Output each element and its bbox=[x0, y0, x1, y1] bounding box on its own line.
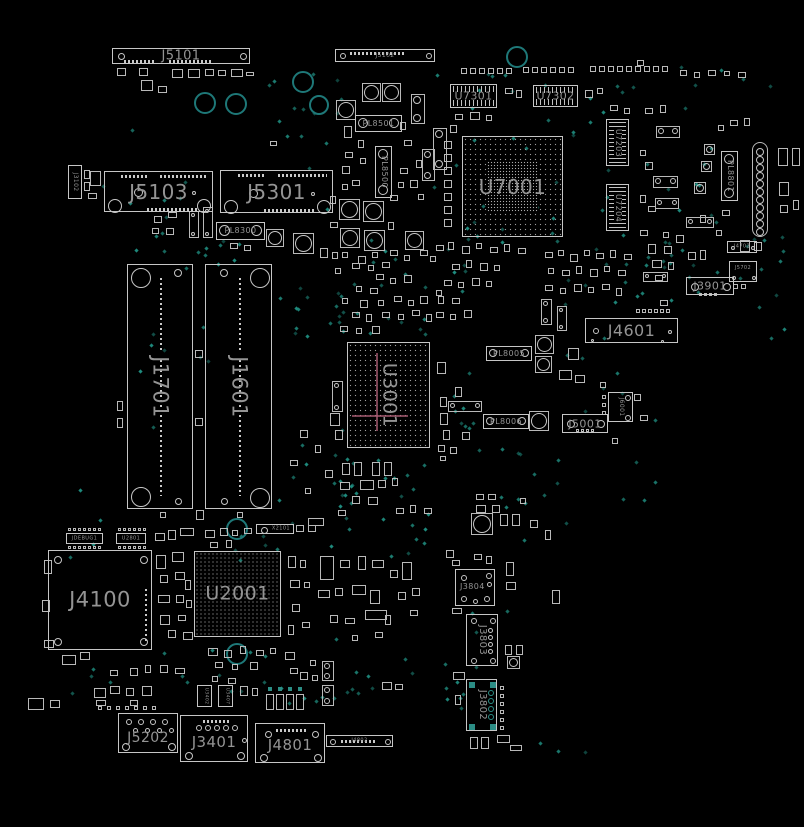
solder-pad bbox=[68, 546, 71, 549]
pin-circle bbox=[461, 596, 467, 602]
component-j1601[interactable]: J1601 bbox=[205, 264, 272, 509]
passive-component bbox=[172, 552, 184, 562]
passive-component bbox=[574, 284, 582, 292]
passive-component bbox=[330, 615, 338, 623]
solder-pad bbox=[626, 66, 632, 72]
pin-circle bbox=[488, 635, 493, 640]
passive-component bbox=[504, 244, 510, 252]
passive-component bbox=[506, 582, 516, 590]
passive-component bbox=[155, 533, 165, 541]
coil-circle-icon bbox=[537, 358, 550, 371]
component-label-j1701: J1701 bbox=[150, 356, 171, 418]
pin-circle bbox=[169, 728, 174, 733]
via-dot bbox=[205, 246, 209, 250]
passive-component bbox=[304, 582, 310, 588]
pin-dots bbox=[203, 720, 229, 723]
passive-component bbox=[342, 184, 348, 190]
component-j6001[interactable]: J6001 bbox=[608, 392, 633, 422]
passive-component bbox=[139, 68, 148, 76]
pin-dots bbox=[160, 278, 162, 350]
passive-component bbox=[778, 148, 788, 166]
passive-component bbox=[694, 72, 700, 78]
inductor-pill bbox=[422, 149, 435, 181]
passive-component bbox=[708, 70, 716, 76]
coil-circle-icon bbox=[365, 203, 382, 220]
passive-component bbox=[285, 652, 295, 660]
component-j5103[interactable]: J5103 bbox=[104, 171, 213, 212]
component-pl8500[interactable]: PL8500 bbox=[375, 146, 392, 198]
via-dot bbox=[666, 188, 670, 192]
passive-component bbox=[356, 286, 362, 292]
passive-component bbox=[208, 648, 218, 656]
pin-circle bbox=[752, 276, 756, 280]
inductor-pill bbox=[656, 126, 680, 138]
pcb-boardview[interactable]: J5101J5102J3102J5103J5301PL8300PL8501PL8… bbox=[0, 0, 804, 827]
pin-circle bbox=[54, 556, 62, 564]
pin-circle bbox=[471, 618, 477, 624]
passive-component bbox=[230, 243, 238, 249]
via-dot bbox=[680, 248, 684, 252]
component-pl8006[interactable]: PL8006 bbox=[483, 414, 529, 429]
pin-circle bbox=[490, 658, 496, 664]
passive-component bbox=[352, 180, 360, 186]
passive-component bbox=[231, 69, 243, 77]
component-j4100[interactable]: J4100 bbox=[48, 550, 152, 650]
passive-component bbox=[352, 263, 360, 269]
solder-pad bbox=[500, 694, 504, 698]
passive-component bbox=[180, 528, 194, 536]
passive-component bbox=[195, 350, 203, 358]
inductor-pill bbox=[322, 661, 334, 681]
component-u7001[interactable]: U7001 bbox=[462, 136, 563, 237]
passive-component bbox=[476, 494, 484, 500]
via-dot bbox=[443, 663, 447, 667]
via-dot bbox=[422, 463, 426, 467]
passive-component bbox=[292, 604, 300, 612]
component-j5101[interactable]: J5101 bbox=[112, 48, 250, 64]
teal-pad bbox=[490, 724, 496, 730]
solder-pad bbox=[590, 66, 596, 72]
component-u2001[interactable]: U2001 bbox=[194, 551, 281, 637]
passive-component bbox=[300, 560, 306, 568]
via-dot bbox=[294, 332, 298, 336]
passive-component bbox=[312, 675, 318, 681]
passive-component bbox=[168, 530, 176, 540]
solder-pad bbox=[506, 68, 512, 74]
pin-circle bbox=[224, 200, 238, 214]
via-dot bbox=[162, 249, 166, 253]
solder-pad bbox=[653, 66, 659, 72]
via-dot bbox=[262, 681, 266, 685]
coil-circle-icon bbox=[364, 85, 379, 100]
component-u7203[interactable]: U7203 bbox=[606, 119, 629, 166]
passive-component bbox=[548, 268, 554, 274]
passive-component bbox=[356, 328, 362, 334]
passive-component bbox=[558, 250, 564, 256]
passive-component bbox=[382, 312, 390, 318]
solder-pad bbox=[88, 528, 91, 531]
passive-component bbox=[205, 530, 215, 538]
solder-pad bbox=[444, 193, 452, 201]
via-dot bbox=[181, 675, 185, 679]
pin-circle bbox=[330, 739, 336, 745]
via-dot bbox=[567, 278, 571, 282]
pin-circle bbox=[138, 719, 144, 725]
pin-circle bbox=[732, 276, 736, 280]
component-j4702[interactable]: J4702 bbox=[727, 241, 757, 253]
solder-pad bbox=[599, 66, 605, 72]
passive-component bbox=[160, 575, 168, 583]
passive-component bbox=[188, 69, 200, 78]
via-dot bbox=[522, 538, 526, 542]
passive-component bbox=[90, 171, 101, 186]
pill-end-circle bbox=[324, 663, 330, 669]
component-j5001[interactable]: J5001 bbox=[562, 414, 608, 433]
solder-pad bbox=[500, 686, 504, 690]
component-j5702[interactable]: J5702 bbox=[729, 261, 757, 282]
passive-component bbox=[610, 250, 616, 258]
passive-component bbox=[481, 737, 489, 749]
solder-pad bbox=[617, 66, 623, 72]
passive-component bbox=[437, 362, 446, 374]
via-dot bbox=[620, 91, 624, 95]
passive-component bbox=[160, 512, 166, 518]
solder-pad bbox=[500, 726, 504, 730]
passive-component bbox=[185, 580, 191, 590]
via-dot bbox=[109, 681, 113, 685]
passive-component bbox=[382, 682, 392, 690]
component-label-j3804: J3804 bbox=[460, 583, 485, 591]
via-dot bbox=[669, 254, 673, 258]
teal-pin-circle bbox=[488, 698, 494, 704]
passive-component bbox=[325, 470, 333, 478]
pill-end-circle bbox=[475, 403, 480, 408]
via-dot bbox=[505, 609, 509, 613]
component-label-pl8006: PL8006 bbox=[490, 418, 522, 426]
passive-component bbox=[252, 688, 258, 696]
component-j1701[interactable]: J1701 bbox=[127, 264, 193, 509]
component-j3804[interactable]: J3804 bbox=[455, 569, 495, 606]
pill-end-circle bbox=[559, 308, 563, 312]
solder-pad bbox=[98, 546, 101, 549]
via-dot bbox=[411, 671, 415, 675]
via-dot bbox=[632, 85, 636, 89]
passive-component bbox=[730, 120, 738, 126]
pin-circle bbox=[625, 395, 631, 401]
solder-pad bbox=[134, 706, 138, 710]
passive-component bbox=[645, 108, 653, 114]
component-j5301[interactable]: J5301 bbox=[220, 170, 333, 213]
component-j5102[interactable]: J5102 bbox=[335, 49, 435, 62]
pin-hole bbox=[756, 164, 764, 172]
via-dot bbox=[155, 234, 159, 238]
passive-component bbox=[160, 615, 170, 625]
component-label-j6001: J6001 bbox=[618, 397, 624, 416]
passive-component bbox=[466, 260, 472, 268]
via-dot bbox=[350, 687, 354, 691]
pin-circle bbox=[192, 191, 196, 195]
component-x2101[interactable]: X2101 bbox=[256, 524, 294, 534]
passive-component bbox=[250, 662, 258, 670]
via-dot bbox=[583, 409, 587, 413]
component-label-u7001: U7001 bbox=[479, 177, 547, 197]
passive-component bbox=[384, 462, 392, 476]
coil-inductor bbox=[535, 356, 552, 373]
component-j4802[interactable]: J4802 bbox=[326, 735, 393, 747]
pin-circle bbox=[205, 725, 211, 731]
passive-component bbox=[455, 114, 463, 120]
component-pl8005[interactable]: PL8005 bbox=[486, 346, 532, 361]
via-dot bbox=[423, 285, 427, 289]
solder-pad bbox=[83, 546, 86, 549]
component-label-j5202: J5202 bbox=[127, 731, 169, 745]
via-dot bbox=[474, 665, 478, 669]
solder-pad bbox=[98, 706, 102, 710]
passive-component bbox=[676, 235, 684, 243]
passive-component bbox=[420, 250, 428, 256]
via-dot bbox=[499, 496, 503, 500]
component-u7204[interactable]: U7204 bbox=[606, 184, 629, 231]
solder-pad bbox=[654, 309, 658, 313]
pin-circle bbox=[175, 498, 182, 505]
passive-component bbox=[156, 555, 166, 569]
inductor-pill bbox=[686, 217, 714, 228]
passive-component bbox=[793, 200, 799, 210]
via-dot bbox=[780, 235, 784, 239]
via-dot bbox=[715, 270, 719, 274]
pin-circle bbox=[426, 53, 432, 59]
pin-circle bbox=[260, 754, 268, 762]
passive-component bbox=[372, 560, 384, 568]
pill-end-circle bbox=[435, 160, 443, 168]
pin-hole bbox=[756, 148, 764, 156]
coil-inductor bbox=[364, 230, 385, 251]
component-j5202[interactable]: J5202 bbox=[118, 713, 178, 753]
passive-component bbox=[62, 655, 76, 665]
pin-circle bbox=[221, 498, 228, 505]
pin-strip-connector[interactable] bbox=[752, 142, 768, 237]
pin-circle bbox=[751, 246, 755, 250]
via-dot bbox=[293, 106, 297, 110]
component-u3407[interactable]: U3407 bbox=[218, 685, 233, 707]
passive-component bbox=[296, 694, 304, 710]
solder-pad bbox=[268, 687, 272, 691]
pill-end-circle bbox=[672, 128, 678, 134]
solder-pad bbox=[500, 702, 504, 706]
passive-component bbox=[244, 528, 252, 534]
component-label-j4100: J4100 bbox=[69, 590, 131, 611]
component-pl8501[interactable]: PL8501 bbox=[355, 115, 402, 132]
component-u7302[interactable]: U7302 bbox=[533, 85, 578, 107]
component-u3402[interactable]: U3402 bbox=[197, 685, 212, 707]
solder-pad bbox=[98, 528, 101, 531]
via-dot bbox=[371, 260, 375, 264]
passive-component bbox=[408, 300, 414, 306]
passive-component bbox=[412, 310, 420, 316]
coil-inductor bbox=[701, 161, 712, 172]
passive-component bbox=[320, 248, 328, 258]
via-dot bbox=[162, 652, 166, 656]
passive-component bbox=[195, 418, 203, 426]
passive-component bbox=[168, 212, 177, 218]
passive-component bbox=[126, 688, 134, 696]
solder-pad bbox=[73, 528, 76, 531]
component-jdebug1[interactable]: JDEBUG1 bbox=[66, 533, 103, 544]
pill-end-circle bbox=[450, 403, 455, 408]
component-j3401[interactable]: J3401 bbox=[180, 715, 248, 762]
passive-component bbox=[486, 115, 492, 121]
passive-component bbox=[600, 382, 606, 388]
solder-pad bbox=[444, 206, 452, 214]
component-j3802[interactable]: J3802 bbox=[466, 679, 497, 731]
pin-dots bbox=[145, 589, 147, 641]
via-dot bbox=[669, 298, 673, 302]
component-label-j4601: J4601 bbox=[608, 323, 655, 339]
component-u2801[interactable]: U2801 bbox=[116, 533, 146, 544]
pin-circle bbox=[118, 53, 125, 60]
via-dot bbox=[640, 292, 644, 296]
component-j4801[interactable]: J4801 bbox=[255, 723, 325, 763]
passive-component bbox=[290, 668, 298, 674]
passive-component bbox=[660, 300, 668, 306]
via-dot bbox=[782, 250, 786, 254]
via-dot bbox=[621, 233, 625, 237]
component-j4601[interactable]: J4601 bbox=[585, 318, 678, 343]
via-dot bbox=[341, 311, 345, 315]
component-j3102[interactable]: J3102 bbox=[68, 165, 82, 199]
passive-component bbox=[430, 256, 436, 262]
pill-end-circle bbox=[655, 178, 661, 184]
pin-dots bbox=[276, 729, 308, 732]
passive-component bbox=[426, 314, 432, 322]
component-u3001[interactable]: U3001 bbox=[347, 342, 430, 448]
passive-component bbox=[117, 401, 123, 411]
solder-pad bbox=[73, 546, 76, 549]
coil-inductor bbox=[535, 335, 554, 354]
pin-circle bbox=[625, 415, 631, 421]
passive-component bbox=[559, 370, 572, 380]
via-dot bbox=[263, 544, 267, 548]
pill-end-circle bbox=[324, 673, 330, 679]
via-dot bbox=[297, 307, 301, 311]
passive-component bbox=[640, 230, 648, 236]
via-dot bbox=[533, 472, 537, 476]
component-j3803[interactable]: J3803 bbox=[466, 614, 498, 666]
solder-pad bbox=[568, 67, 574, 73]
pin-circle bbox=[168, 743, 176, 751]
via-dot bbox=[504, 505, 508, 509]
via-dot bbox=[267, 83, 271, 87]
coil-inductor bbox=[694, 182, 706, 194]
passive-component bbox=[718, 125, 724, 131]
via-dot bbox=[218, 244, 222, 248]
via-dot bbox=[233, 258, 237, 262]
pin-hole bbox=[756, 204, 764, 212]
via-dot bbox=[454, 163, 458, 167]
passive-component bbox=[612, 438, 618, 444]
via-dot bbox=[565, 521, 569, 525]
passive-component bbox=[552, 590, 560, 604]
passive-component bbox=[602, 284, 610, 290]
solder-pad bbox=[78, 546, 81, 549]
component-j3901[interactable]: J3901 bbox=[686, 277, 734, 295]
passive-component bbox=[584, 250, 590, 256]
via-dot bbox=[763, 239, 767, 243]
component-label-j3901: J3901 bbox=[693, 281, 726, 292]
via-dot bbox=[782, 327, 786, 331]
solder-pad bbox=[83, 528, 86, 531]
passive-component bbox=[237, 512, 243, 518]
component-pl8801[interactable]: PL8801 bbox=[721, 151, 738, 201]
coil-circle-icon bbox=[473, 515, 491, 533]
solder-pad bbox=[93, 546, 96, 549]
passive-component bbox=[80, 652, 90, 660]
via-dot bbox=[261, 534, 265, 538]
component-u7301[interactable]: U7301 bbox=[450, 84, 497, 108]
component-pl8300[interactable]: PL8300 bbox=[216, 222, 265, 240]
passive-component bbox=[302, 622, 310, 628]
passive-component bbox=[340, 560, 350, 568]
component-label-u7301: U7301 bbox=[454, 91, 492, 102]
passive-component bbox=[308, 525, 316, 532]
via-dot bbox=[305, 463, 309, 467]
via-dot bbox=[98, 519, 102, 523]
passive-component bbox=[545, 252, 553, 258]
via-dot bbox=[285, 134, 289, 138]
passive-component bbox=[618, 270, 626, 276]
component-label-u2801: U2801 bbox=[122, 536, 140, 541]
passive-component bbox=[378, 300, 384, 306]
via-dot bbox=[461, 289, 465, 293]
via-dot bbox=[92, 667, 96, 671]
solder-pad bbox=[444, 154, 452, 162]
passive-component bbox=[562, 270, 570, 276]
pill-end-circle bbox=[324, 687, 330, 693]
via-dot bbox=[583, 283, 587, 287]
via-dot bbox=[471, 421, 475, 425]
passive-component bbox=[390, 278, 396, 284]
passive-component bbox=[476, 505, 486, 513]
component-label-jdebug1: JDEBUG1 bbox=[72, 536, 97, 541]
passive-component bbox=[375, 632, 383, 638]
passive-component bbox=[510, 745, 522, 751]
solder-pad bbox=[138, 546, 141, 549]
via-dot bbox=[299, 134, 303, 138]
via-dot bbox=[355, 670, 359, 674]
component-label-j4702: J4702 bbox=[734, 245, 750, 250]
passive-component bbox=[154, 216, 162, 223]
via-dot bbox=[455, 681, 459, 685]
via-dot bbox=[356, 692, 360, 696]
coil-inductor bbox=[266, 229, 284, 247]
passive-component bbox=[464, 310, 472, 318]
coil-circle-icon bbox=[338, 102, 354, 118]
via-dot bbox=[334, 638, 338, 642]
pin-circle bbox=[486, 573, 492, 579]
passive-component bbox=[218, 70, 226, 76]
passive-component bbox=[492, 505, 500, 513]
passive-component bbox=[158, 595, 170, 603]
pin-circle bbox=[473, 599, 478, 604]
via-dot bbox=[204, 253, 208, 257]
via-dot bbox=[467, 371, 471, 375]
passive-component bbox=[385, 615, 391, 625]
component-label-pl8005: PL8005 bbox=[493, 350, 525, 358]
solder-pad bbox=[666, 309, 670, 313]
coil-circle-icon bbox=[537, 337, 552, 352]
passive-component bbox=[396, 508, 404, 514]
via-dot bbox=[135, 248, 139, 252]
